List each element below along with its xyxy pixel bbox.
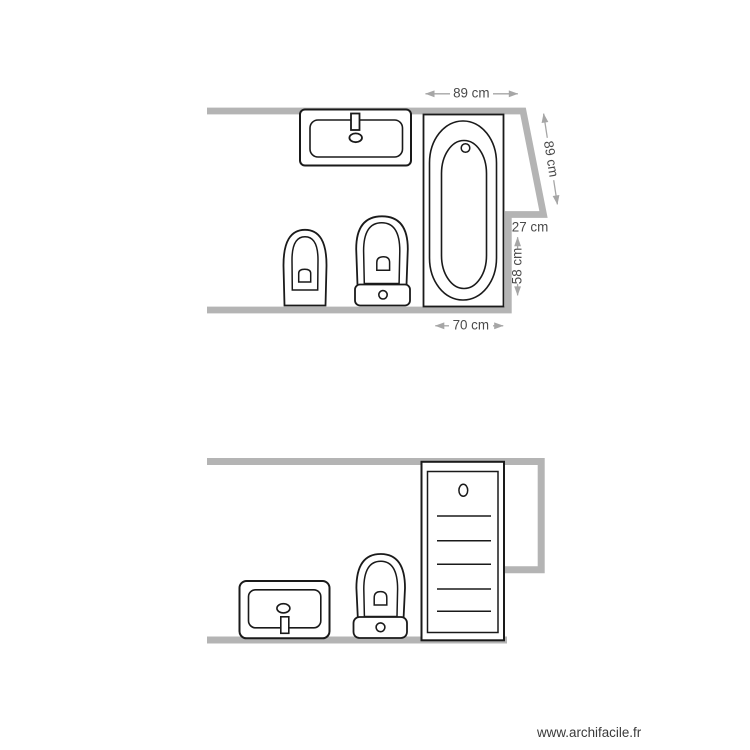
floor-plan-drawing (0, 0, 750, 750)
dimension-label-top-width: 89 cm (453, 87, 489, 100)
drain-icon (277, 604, 290, 613)
washbasin-bottom-room[interactable] (240, 581, 330, 638)
dimension-label-tub-width: 70 cm (453, 319, 489, 332)
floor-plan-canvas: 89 cm 89 cm 27 cm 58 cm 70 cm www.archif… (0, 0, 750, 750)
bathtub[interactable] (424, 115, 504, 307)
shower-knob-icon (459, 484, 468, 496)
shower-column[interactable] (422, 462, 505, 641)
dimension-label-recess-height: 58 cm (511, 248, 524, 284)
flush-button-icon (379, 291, 387, 299)
toilet-bottom-room[interactable] (354, 554, 408, 638)
faucet-icon (351, 114, 360, 131)
faucet-icon (281, 617, 289, 634)
washbasin-top-room[interactable] (300, 110, 411, 166)
dimension-label-recess-width: 27 cm (512, 220, 548, 233)
bidet[interactable] (283, 230, 326, 306)
flush-button-icon (376, 623, 385, 632)
bottom-room (207, 462, 541, 641)
tub-drain-icon (461, 144, 470, 153)
archifacile-watermark: www.archifacile.fr (537, 726, 641, 739)
top-room (207, 94, 557, 326)
drain-icon (349, 133, 362, 142)
toilet-top-room[interactable] (355, 216, 410, 305)
